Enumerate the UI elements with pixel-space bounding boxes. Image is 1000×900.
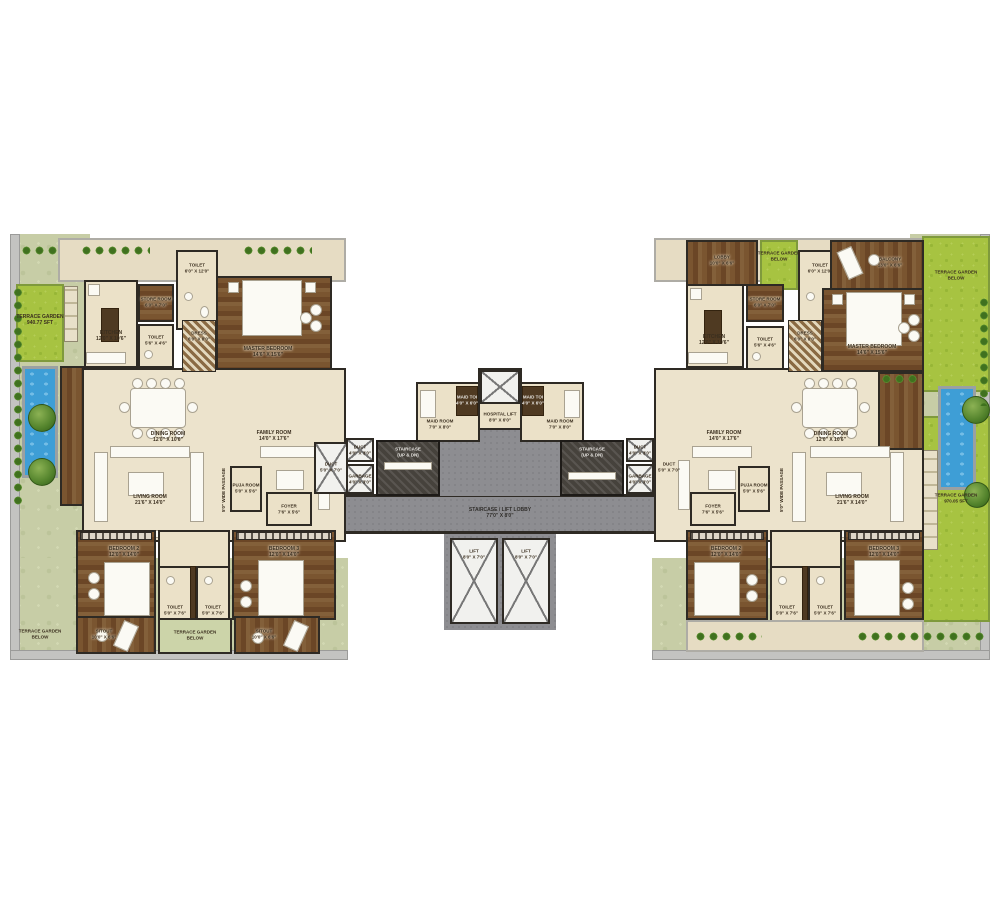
- bed: [104, 562, 150, 616]
- stool: [240, 580, 252, 592]
- room-label-bedroom2-left: BEDROOM 212'0" X 14'0": [109, 546, 139, 559]
- sofa: [692, 446, 752, 458]
- room-label-master-right: MASTER BEDROOM14'6" X 15'6": [848, 344, 897, 357]
- hedge-row: [856, 630, 986, 643]
- hedge-column: [978, 296, 990, 406]
- chair: [300, 312, 312, 324]
- label-passage-left: 5'0" WIDE PASSAGE: [221, 468, 227, 512]
- room-label-toilet-mid-right: TOILET5'6" X 4'6": [754, 336, 776, 347]
- hedge-row: [80, 244, 150, 257]
- sofa: [110, 446, 190, 458]
- planter-tiles: [64, 286, 78, 342]
- room-label-dress-right: DRESS6'0" X 8'0": [794, 330, 816, 341]
- wc-icon: [200, 306, 209, 318]
- room-label-sitout2-left: SITOUT10'0" X 6'6": [252, 628, 276, 639]
- room-label-maid-right: MAID ROOM7'0" X 8'0": [547, 418, 574, 429]
- label-terrace-top-mid-right: TERRACE GARDENBELOW: [758, 250, 801, 261]
- room-label-dining-left: DINING ROOM12'0" X 10'6": [151, 431, 185, 444]
- kitchen-counter: [688, 352, 728, 364]
- sofa: [810, 446, 890, 458]
- stool: [746, 590, 758, 602]
- room-label-store-right: STORE ROOM6'0" X 7'0": [750, 296, 781, 307]
- chair: [832, 378, 843, 389]
- chair: [187, 402, 198, 413]
- sofa: [94, 452, 108, 522]
- sofa: [190, 452, 204, 522]
- window-blinds: [80, 532, 152, 540]
- terrace-garden-top-mid-right: [760, 240, 798, 290]
- basin-icon: [144, 350, 153, 359]
- sofa: [890, 452, 904, 522]
- coffee-table: [708, 470, 736, 490]
- basin-icon: [816, 576, 825, 585]
- room-label-store-left: STORE ROOM6'0" X 7'0": [141, 296, 172, 307]
- room-label-sitout1-left: SITOUT10'0" X 6'6": [92, 628, 116, 639]
- label-lift-1: LIFT8'0" X 7'0": [463, 548, 485, 559]
- basin-icon: [806, 292, 815, 301]
- basin-icon: [204, 576, 213, 585]
- label-garbage-left: GARBAGE4'0" X 3'0": [348, 473, 371, 484]
- stove-icon: [88, 284, 100, 296]
- wood-deck-left: [60, 366, 84, 506]
- room-label-bedroom3-right: BEDROOM 312'0" X 14'0": [869, 546, 899, 559]
- stool: [746, 574, 758, 586]
- room-label-family-right: FAMILY ROOM14'0" X 17'6": [707, 430, 742, 443]
- label-duct-small-right: DUCT4'0" X 3'0": [629, 444, 651, 455]
- chair: [132, 428, 143, 439]
- chair: [160, 378, 171, 389]
- room-label-kitchen-left: KITCHEN12'0" X 10'6": [96, 330, 126, 343]
- dress-room-right: [788, 320, 822, 372]
- bed: [420, 390, 436, 418]
- room-label-master-left: MASTER BEDROOM14'6" X 15'6": [244, 346, 293, 359]
- label-passage-right: 5'0" WIDE PASSAGE: [779, 468, 785, 512]
- stool: [88, 588, 100, 600]
- chair: [146, 378, 157, 389]
- shaft-divider: [190, 566, 196, 624]
- side-table: [904, 294, 915, 305]
- chair: [908, 330, 920, 342]
- room-label-toilet-bed2-left: TOILET5'0" X 7'6": [164, 604, 186, 615]
- label-terrace-garden-right: TERRACE GARDEN970.05 SFT: [935, 492, 978, 503]
- dining-table: [130, 388, 186, 428]
- stool: [88, 572, 100, 584]
- room-label-lobby-right: LOBBY10'0" X 6'6": [710, 254, 734, 265]
- coffee-table: [276, 470, 304, 490]
- label-lift-2: LIFT8'0" X 7'0": [515, 548, 537, 559]
- chair: [859, 402, 870, 413]
- stool: [240, 596, 252, 608]
- bed: [258, 560, 304, 616]
- toilet-mid-left: [138, 324, 174, 368]
- hospital-lift-shaft: [480, 370, 520, 404]
- side-table: [305, 282, 316, 293]
- room-label-maid-toi-left: MAID TOI4'0" X 6'0": [456, 394, 478, 405]
- room-label-foyer-right: FOYER7'6" X 5'6": [702, 503, 724, 514]
- tree-icon: [28, 404, 56, 432]
- room-label-kitchen-right: KITCHEN12'0" X 10'6": [699, 334, 729, 347]
- room-label-puja-left: PUJA ROOM5'0" X 5'6": [232, 482, 259, 493]
- room-label-terrace-garden-left: TERRACE GARDEN940.77 SFT: [16, 314, 63, 327]
- bedroom-passage-left: [158, 530, 230, 568]
- basin-icon: [166, 576, 175, 585]
- hedge-row: [20, 244, 60, 257]
- basin-icon: [752, 352, 761, 361]
- chair: [791, 402, 802, 413]
- label-duct-left: DUCT5'0" X 7'0": [320, 461, 342, 472]
- chair: [310, 304, 322, 316]
- window-blinds: [690, 532, 764, 540]
- chair: [898, 322, 910, 334]
- hedge-row: [242, 244, 312, 257]
- room-label-foyer-left: FOYER7'6" X 5'6": [278, 503, 300, 514]
- room-label-toilet-top-right: TOILET6'0" X 12'0": [808, 262, 832, 273]
- bed: [564, 390, 580, 418]
- chair: [804, 378, 815, 389]
- hedge-row: [880, 374, 922, 384]
- bed: [694, 562, 740, 616]
- coffee-table: [826, 472, 862, 496]
- chair: [310, 320, 322, 332]
- dining-table: [802, 388, 858, 428]
- room-label-balcony-right: BALCONY13'0" X 6'6": [878, 256, 902, 267]
- floor-plan: TERRACE GARDEN940.77 SFT KITCHEN12'0" X …: [0, 0, 1000, 900]
- bed: [242, 280, 302, 336]
- bed: [846, 292, 902, 346]
- dress-room-left: [182, 320, 216, 372]
- label-garbage-right: GARBAGE4'0" X 3'0": [628, 473, 651, 484]
- room-label-bedroom3-left: BEDROOM 312'0" X 14'0": [269, 546, 299, 559]
- bedroom-passage-right: [770, 530, 842, 568]
- room-label-maid-left: MAID ROOM7'0" X 8'0": [427, 418, 454, 429]
- room-label-toilet-bed2-right: TOILET5'0" X 7'6": [776, 604, 798, 615]
- label-terrace-right-top: TERRACE GARDENBELOW: [935, 269, 978, 280]
- chair: [818, 378, 829, 389]
- room-label-hospital-lift: HOSPITAL LIFT8'0" X 6'0": [483, 411, 516, 422]
- chair: [908, 314, 920, 326]
- stair-rail: [384, 462, 432, 470]
- kitchen-counter: [86, 352, 126, 364]
- chair: [846, 378, 857, 389]
- stool: [902, 598, 914, 610]
- room-label-maid-toi-right: MAID TOI4'0" X 6'0": [522, 394, 544, 405]
- label-terrace-below-mid-left: TERRACE GARDENBELOW: [174, 629, 217, 640]
- side-table: [832, 294, 843, 305]
- sitout-left-2: [234, 616, 320, 654]
- sofa: [260, 446, 320, 458]
- hedge-row: [694, 630, 762, 643]
- room-label-family-left: FAMILY ROOM14'0" X 17'6": [257, 430, 292, 443]
- room-label-staircase-left: STAIRCASE(UP & DN): [395, 446, 421, 457]
- chair: [119, 402, 130, 413]
- room-label-bedroom2-right: BEDROOM 212'0" X 14'0": [711, 546, 741, 559]
- room-label-toilet-bed3-left: TOILET5'0" X 7'6": [202, 604, 224, 615]
- side-table: [228, 282, 239, 293]
- window-blinds: [848, 532, 920, 540]
- room-label-dress-left: DRESS6'0" X 8'0": [188, 330, 210, 341]
- label-lift-lobby: STAIRCASE / LIFT LOBBY77'0" X 8'0": [469, 507, 531, 520]
- room-label-toilet-mid-left: TOILET5'6" X 4'6": [145, 334, 167, 345]
- window-blinds: [236, 532, 332, 540]
- shaft-divider: [802, 566, 808, 624]
- room-label-living-right: LIVING ROOM21'6" X 14'0": [835, 494, 869, 507]
- chair: [132, 378, 143, 389]
- bed: [854, 560, 900, 616]
- room-label-puja-right: PUJA ROOM5'0" X 5'6": [740, 482, 767, 493]
- sofa: [792, 452, 806, 522]
- room-label-toilet-bed3-right: TOILET5'0" X 7'6": [814, 604, 836, 615]
- basin-icon: [184, 292, 193, 301]
- room-label-living-left: LIVING ROOM21'6" X 14'0": [133, 494, 167, 507]
- toilet-mid-right: [746, 326, 784, 370]
- chair: [174, 378, 185, 389]
- label-duct-small-left: DUCT4'0" X 3'0": [349, 444, 371, 455]
- room-label-staircase-right: STAIRCASE(UP & DN): [579, 446, 605, 457]
- label-duct-right: DUCT5'0" X 7'0": [658, 461, 680, 472]
- stool: [902, 582, 914, 594]
- room-label-toilet-top-left: TOILET6'0" X 12'0": [185, 262, 209, 273]
- stair-rail: [568, 472, 616, 480]
- basin-icon: [778, 576, 787, 585]
- label-terrace-below-corner-left: TERRACE GARDENBELOW: [19, 628, 62, 639]
- room-label-dining-right: DINING ROOM12'0" X 10'6": [814, 431, 848, 444]
- coffee-table: [128, 472, 164, 496]
- stove-icon: [690, 288, 702, 300]
- tree-icon: [28, 458, 56, 486]
